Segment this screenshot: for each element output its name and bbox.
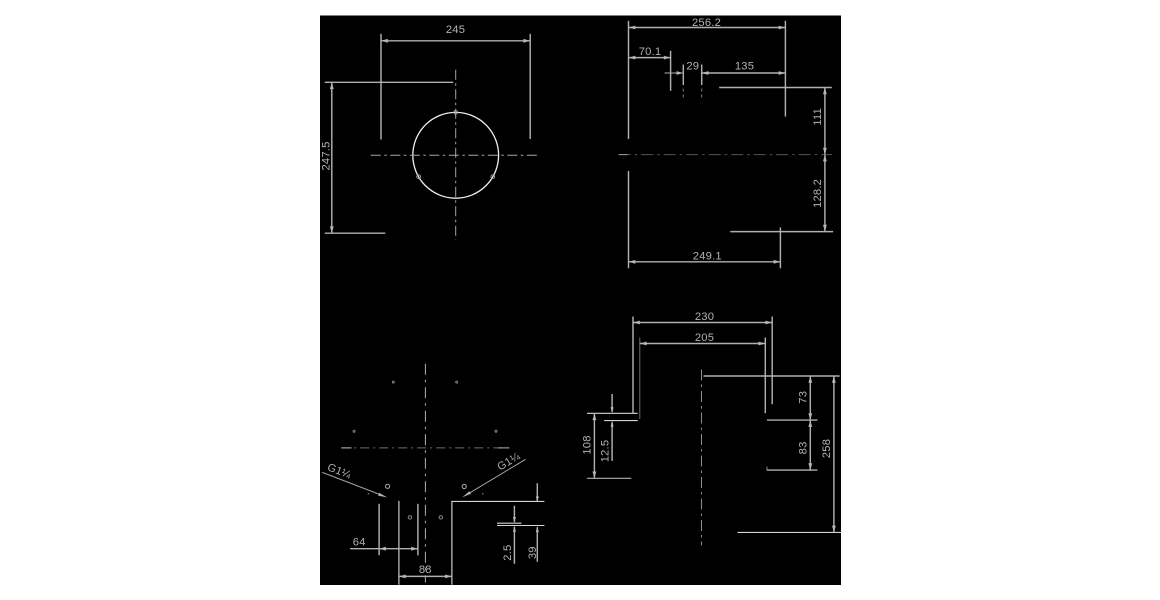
- svg-text:29: 29: [686, 60, 699, 72]
- svg-text:88: 88: [419, 564, 432, 576]
- svg-text:135: 135: [735, 60, 754, 72]
- svg-text:39: 39: [527, 546, 539, 559]
- svg-text:108: 108: [582, 435, 594, 454]
- svg-text:64: 64: [353, 537, 366, 549]
- svg-text:258: 258: [821, 439, 833, 458]
- svg-text:256.2: 256.2: [692, 17, 721, 29]
- svg-text:128.2: 128.2: [812, 179, 824, 208]
- svg-text:247.5: 247.5: [320, 142, 332, 171]
- svg-text:83: 83: [798, 441, 810, 454]
- svg-text:73: 73: [798, 391, 810, 404]
- svg-text:205: 205: [695, 332, 714, 344]
- svg-text:245: 245: [446, 24, 465, 36]
- svg-text:2.5: 2.5: [502, 545, 514, 561]
- svg-text:70.1: 70.1: [639, 46, 662, 58]
- svg-text:111: 111: [812, 108, 824, 126]
- svg-text:12.5: 12.5: [600, 440, 612, 463]
- svg-text:230: 230: [695, 311, 714, 323]
- svg-text:249.1: 249.1: [693, 250, 722, 262]
